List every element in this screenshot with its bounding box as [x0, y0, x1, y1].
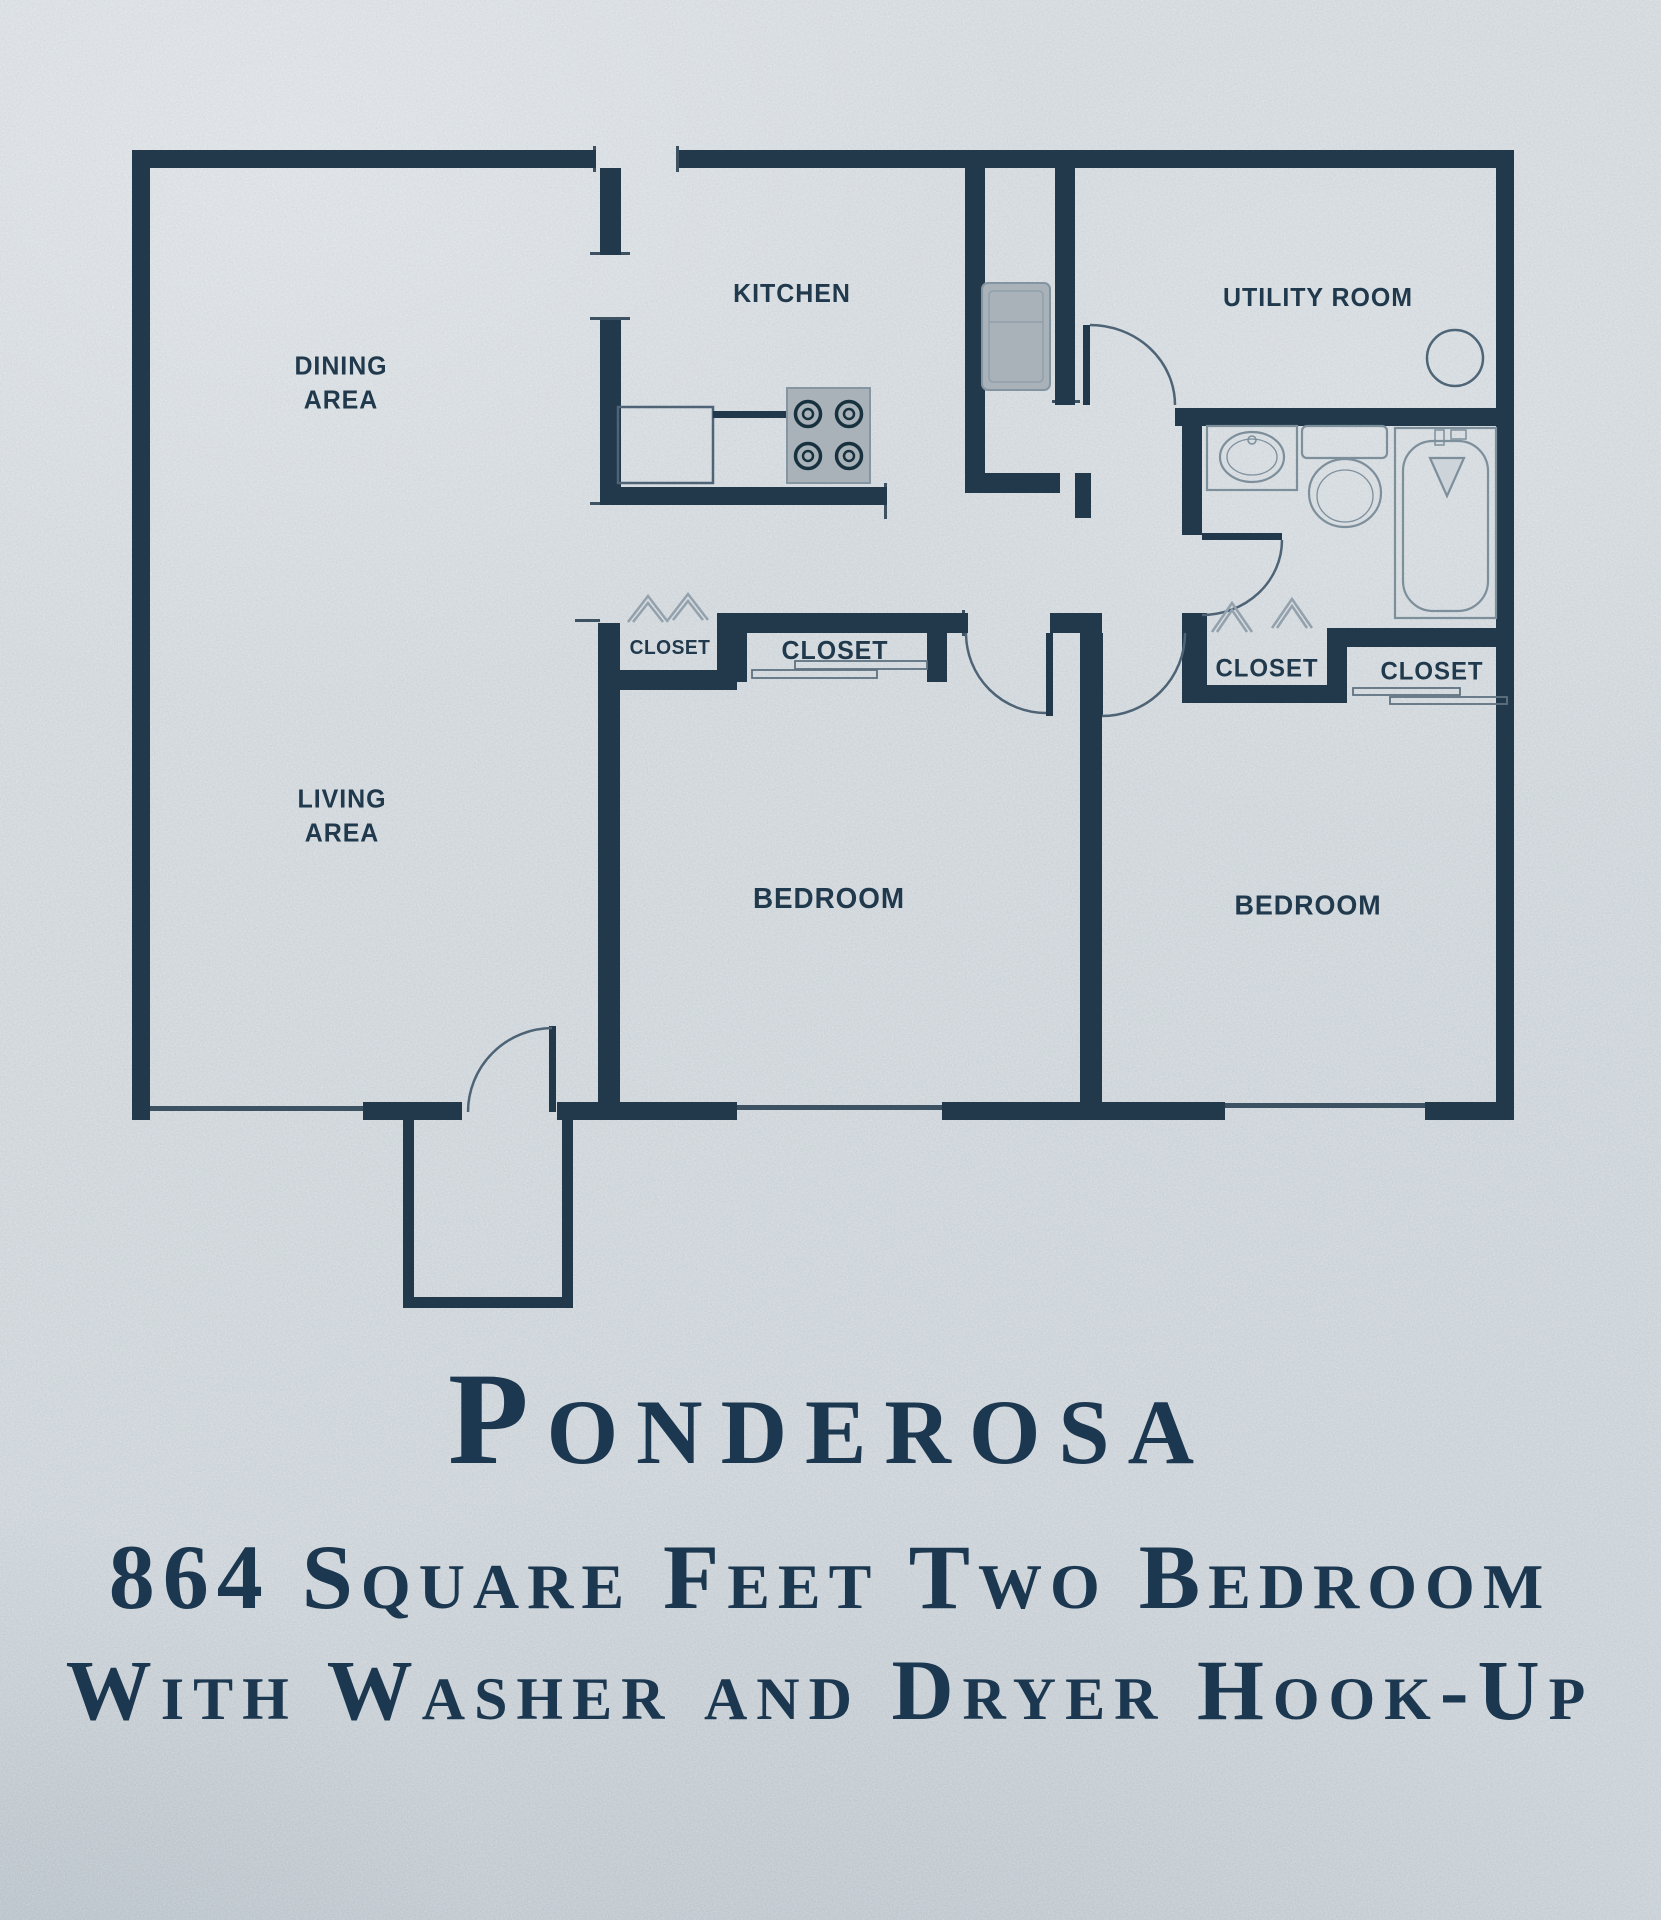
- bathroom-door-leaf: [1202, 533, 1282, 540]
- room-label-kitchen: KITCHEN: [733, 276, 851, 310]
- room-label-bedroom-right: BEDROOM: [1234, 888, 1381, 925]
- floor-plan-sheet: DINING AREA KITCHEN UTILITY ROOM LIVING …: [0, 0, 1661, 1920]
- counter-line: [713, 411, 787, 418]
- room-label-utility: UTILITY ROOM: [1223, 280, 1413, 314]
- room-label-living: LIVING AREA: [298, 782, 387, 851]
- room-label-closet-hall: CLOSET: [630, 635, 711, 661]
- room-label-closet-right-b: CLOSET: [1380, 656, 1483, 689]
- room-label-bedroom-left: BEDROOM: [753, 880, 905, 918]
- room-label-closet-right-a: CLOSET: [1215, 653, 1318, 686]
- refrigerator-icon: [982, 283, 1050, 390]
- entry-door-leaf: [549, 1026, 556, 1112]
- room-label-closet-bedroom-left: CLOSET: [782, 633, 889, 667]
- plan-name: Ponderosa: [448, 1342, 1212, 1495]
- stove-icon: [787, 388, 870, 483]
- plan-subtitle: 864 Square Feet Two Bedroom: [109, 1524, 1552, 1630]
- plan-subtitle-2: With Washer and Dryer Hook-Up: [66, 1640, 1595, 1740]
- utility-door-leaf: [1083, 325, 1090, 405]
- room-label-dining: DINING AREA: [294, 349, 387, 418]
- bedroom-right-door-leaf: [1096, 633, 1103, 716]
- bedroom-left-door-leaf: [1046, 633, 1053, 716]
